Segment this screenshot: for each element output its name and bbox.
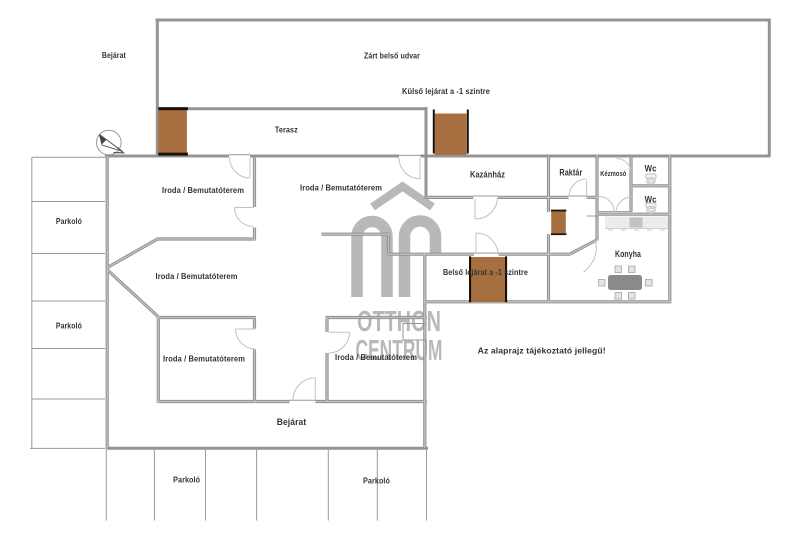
- svg-text:Belső lejárat a -1 szintre: Belső lejárat a -1 szintre: [443, 268, 528, 277]
- svg-text:Wc: Wc: [645, 163, 657, 173]
- svg-text:Kézmosó: Kézmosó: [600, 171, 626, 178]
- svg-text:Iroda / Bemutatóterem: Iroda / Bemutatóterem: [300, 183, 382, 192]
- svg-text:Wc: Wc: [645, 194, 657, 204]
- svg-text:Külső lejárat a -1 szintre: Külső lejárat a -1 szintre: [402, 86, 490, 96]
- svg-text:Parkoló: Parkoló: [56, 216, 82, 226]
- svg-text:CENTRUM: CENTRUM: [356, 335, 443, 367]
- svg-text:Zárt belső udvar: Zárt belső udvar: [364, 51, 420, 61]
- svg-text:Bejárat: Bejárat: [102, 50, 126, 60]
- svg-text:Terasz: Terasz: [275, 125, 298, 135]
- svg-text:Konyha: Konyha: [615, 249, 642, 259]
- svg-text:Iroda / Bemutatóterem: Iroda / Bemutatóterem: [162, 186, 244, 195]
- svg-text:OTTHON: OTTHON: [357, 306, 441, 338]
- svg-text:Iroda / Bemutatóterem: Iroda / Bemutatóterem: [156, 272, 238, 281]
- svg-text:Iroda / Bemutatóterem: Iroda / Bemutatóterem: [335, 353, 417, 362]
- svg-text:Raktár: Raktár: [559, 167, 582, 177]
- svg-text:Parkoló: Parkoló: [173, 475, 200, 485]
- svg-text:Iroda / Bemutatóterem: Iroda / Bemutatóterem: [163, 354, 245, 363]
- svg-text:Kazánház: Kazánház: [470, 169, 505, 179]
- svg-text:Bejárat: Bejárat: [277, 417, 307, 428]
- svg-text:Az alaprajz tájékoztató jelleg: Az alaprajz tájékoztató jellegű!: [478, 346, 606, 356]
- svg-text:Parkoló: Parkoló: [363, 476, 390, 486]
- svg-text:Parkoló: Parkoló: [56, 320, 82, 330]
